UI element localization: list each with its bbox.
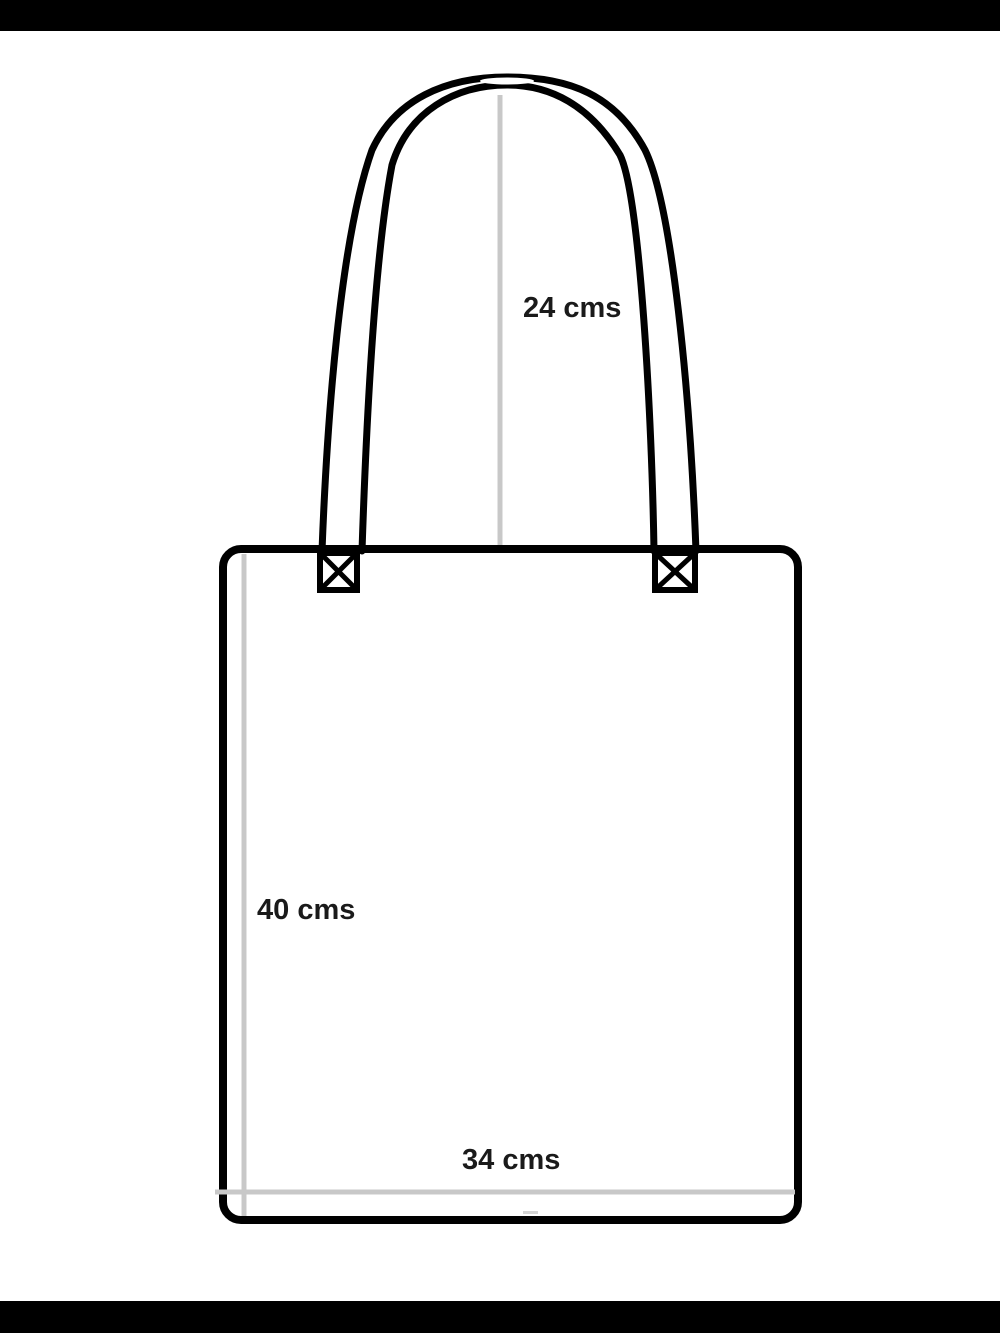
handle-height-label: 24 cms	[523, 294, 621, 323]
bag-height-label: 40 cms	[257, 896, 355, 925]
handle-crown-lens	[480, 78, 534, 85]
bag-drawing-canvas	[0, 0, 1000, 1333]
left-strap-anchor	[320, 553, 357, 590]
tote-bag-dimension-diagram: 24 cms 40 cms 34 cms	[0, 0, 1000, 1333]
bottom-center-tick	[523, 1211, 538, 1214]
letterbox-bottom-bar	[0, 1301, 1000, 1333]
bag-body-outline	[223, 549, 798, 1220]
right-strap-anchor	[655, 553, 695, 590]
bag-width-label: 34 cms	[462, 1146, 560, 1175]
